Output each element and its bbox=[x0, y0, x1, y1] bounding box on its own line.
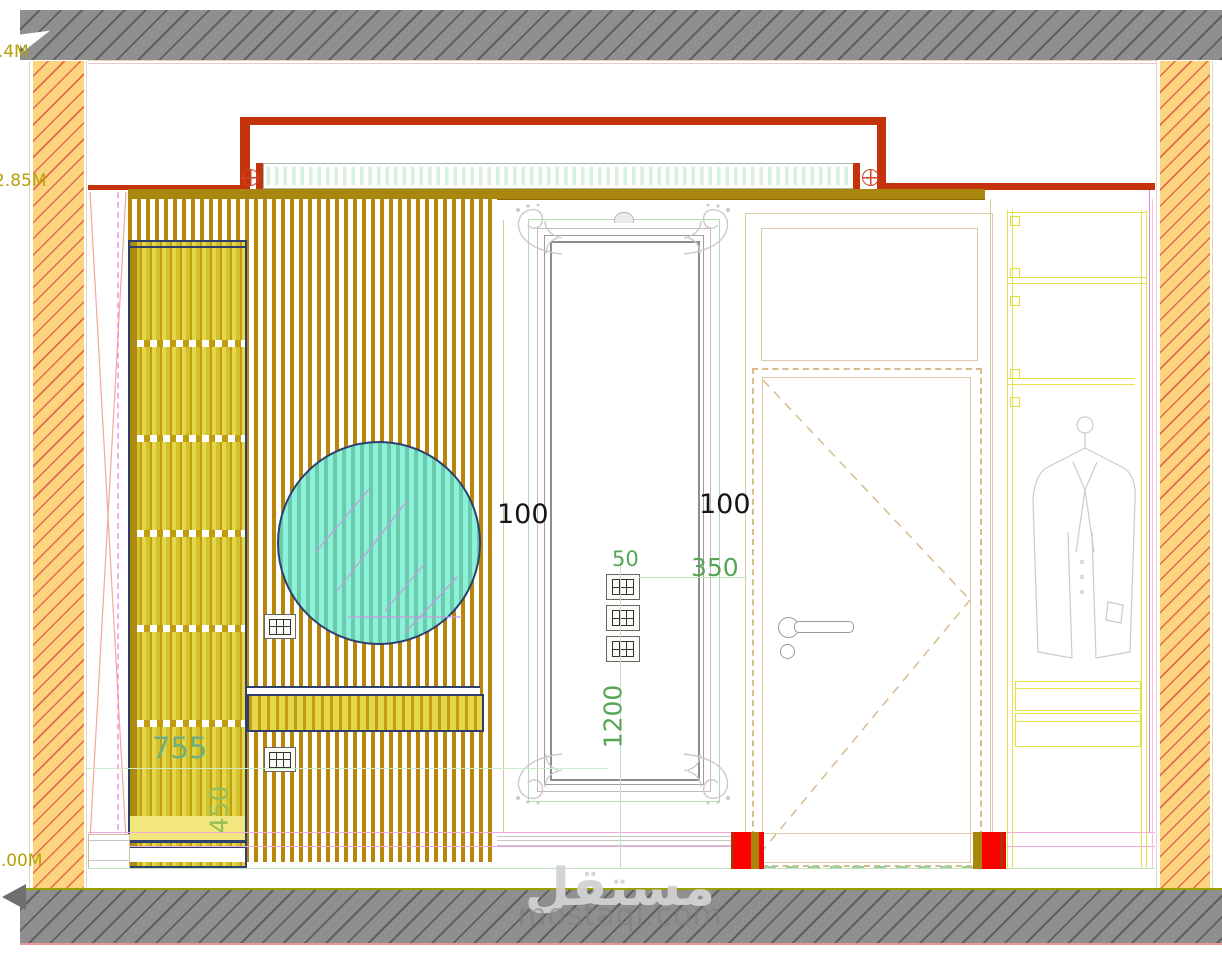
wardrobe-shelf bbox=[1007, 283, 1147, 284]
dim-label-450: 450 bbox=[205, 774, 234, 846]
skirting-line bbox=[497, 845, 731, 846]
ceiling-rose-icon bbox=[862, 169, 879, 186]
dim-line-horizontal bbox=[85, 768, 608, 769]
elevation-drawing-canvas: 3.4M 2.85M 0.00M 100 100 50 350 1200 755… bbox=[0, 0, 1222, 961]
door-swing-lines bbox=[755, 372, 980, 860]
skirting-line bbox=[497, 840, 731, 841]
cabinet-shelf bbox=[137, 720, 245, 727]
mirror-ornament-icon bbox=[510, 202, 564, 256]
wall-socket-icon bbox=[606, 574, 640, 600]
mirror-crest bbox=[614, 212, 634, 223]
dim-label-50: 50 bbox=[612, 547, 639, 571]
ceiling-line bbox=[88, 60, 1157, 61]
cabinet-shelf bbox=[137, 340, 245, 347]
drawer-line bbox=[1016, 688, 1140, 689]
shelf-pin bbox=[1010, 268, 1020, 278]
skirting-pink-line bbox=[88, 832, 731, 833]
dressing-console bbox=[247, 694, 484, 732]
baseboard-line bbox=[89, 840, 129, 841]
mirror-reflection-lines bbox=[277, 441, 479, 643]
top-slab bbox=[20, 10, 1222, 60]
right-wall-outer-line bbox=[1212, 61, 1213, 890]
skirting-line bbox=[497, 836, 731, 837]
level-label-top: 3.4M bbox=[0, 42, 29, 62]
dim-label-100-left: 100 bbox=[497, 499, 549, 530]
right-wall-inner-line bbox=[1156, 61, 1157, 890]
ceiling-rose-icon bbox=[242, 169, 259, 186]
cabinet-shelf bbox=[137, 435, 245, 442]
wall-socket-icon bbox=[606, 636, 640, 662]
keyhole-icon bbox=[780, 644, 795, 659]
baseboard-line bbox=[89, 860, 129, 861]
drawer-front bbox=[1015, 681, 1141, 711]
wardrobe-shelf bbox=[1007, 277, 1147, 278]
bottom-slab-break-icon bbox=[2, 884, 26, 910]
shelf-pin bbox=[1010, 397, 1020, 407]
transom-panel bbox=[761, 228, 978, 361]
cabinet-top-line bbox=[130, 246, 245, 248]
level-label-ceiling: 2.85M bbox=[0, 171, 47, 191]
level-label-floor: 0.00M bbox=[0, 851, 43, 871]
skirting-pink-line bbox=[1005, 846, 1155, 847]
dim-label-100-right: 100 bbox=[699, 489, 751, 520]
cove-right-post bbox=[853, 163, 860, 190]
skirting-pink-line bbox=[88, 846, 731, 847]
wardrobe-top-line bbox=[1007, 212, 1147, 213]
dim-label-350: 350 bbox=[691, 553, 739, 582]
shelf-pin bbox=[1010, 216, 1020, 226]
mirror-ornament-icon bbox=[510, 752, 564, 806]
cove-light-strip bbox=[263, 163, 855, 189]
cross-brace-lines bbox=[86, 190, 130, 868]
wardrobe-side-line bbox=[1012, 210, 1013, 868]
door-jamb-left bbox=[731, 832, 764, 869]
coat-hanger-icon bbox=[1028, 412, 1142, 668]
door-handle-lever bbox=[794, 621, 854, 633]
cabinet-foot-gap bbox=[130, 848, 245, 862]
ceiling-pink-line bbox=[88, 63, 1157, 64]
baseboard-block bbox=[88, 834, 130, 869]
right-wall-section bbox=[1160, 61, 1210, 890]
drawer-front bbox=[1015, 713, 1141, 747]
threshold-dashed-line bbox=[764, 866, 973, 868]
mirror-ornament-icon bbox=[682, 202, 736, 256]
cornice-top-bar bbox=[240, 117, 886, 125]
skirting-pink-line bbox=[1005, 832, 1155, 833]
door-jamb-right bbox=[973, 832, 1006, 869]
dim-label-755: 755 bbox=[152, 731, 207, 765]
mirror-ornament-icon bbox=[682, 752, 736, 806]
wardrobe-shelf bbox=[1007, 378, 1135, 379]
wardrobe-side-line bbox=[1007, 210, 1008, 868]
centerline-dashed bbox=[117, 192, 119, 860]
watermark-domain: mostaql.com bbox=[517, 898, 723, 933]
wall-socket-icon bbox=[264, 614, 296, 639]
wall-socket-icon bbox=[606, 605, 640, 631]
wardrobe-pink-line bbox=[1152, 199, 1153, 868]
drawer-line bbox=[1016, 721, 1140, 722]
shelf-pin bbox=[1010, 296, 1020, 306]
cabinet-shelf bbox=[137, 530, 245, 537]
wardrobe-pink-line bbox=[1149, 190, 1150, 832]
cabinet-shelf bbox=[137, 625, 245, 632]
dim-label-1200: 1200 bbox=[599, 681, 628, 753]
wardrobe-side-line bbox=[1146, 210, 1147, 868]
shelf-pin bbox=[1010, 369, 1020, 379]
wardrobe-shelf bbox=[1007, 384, 1135, 385]
